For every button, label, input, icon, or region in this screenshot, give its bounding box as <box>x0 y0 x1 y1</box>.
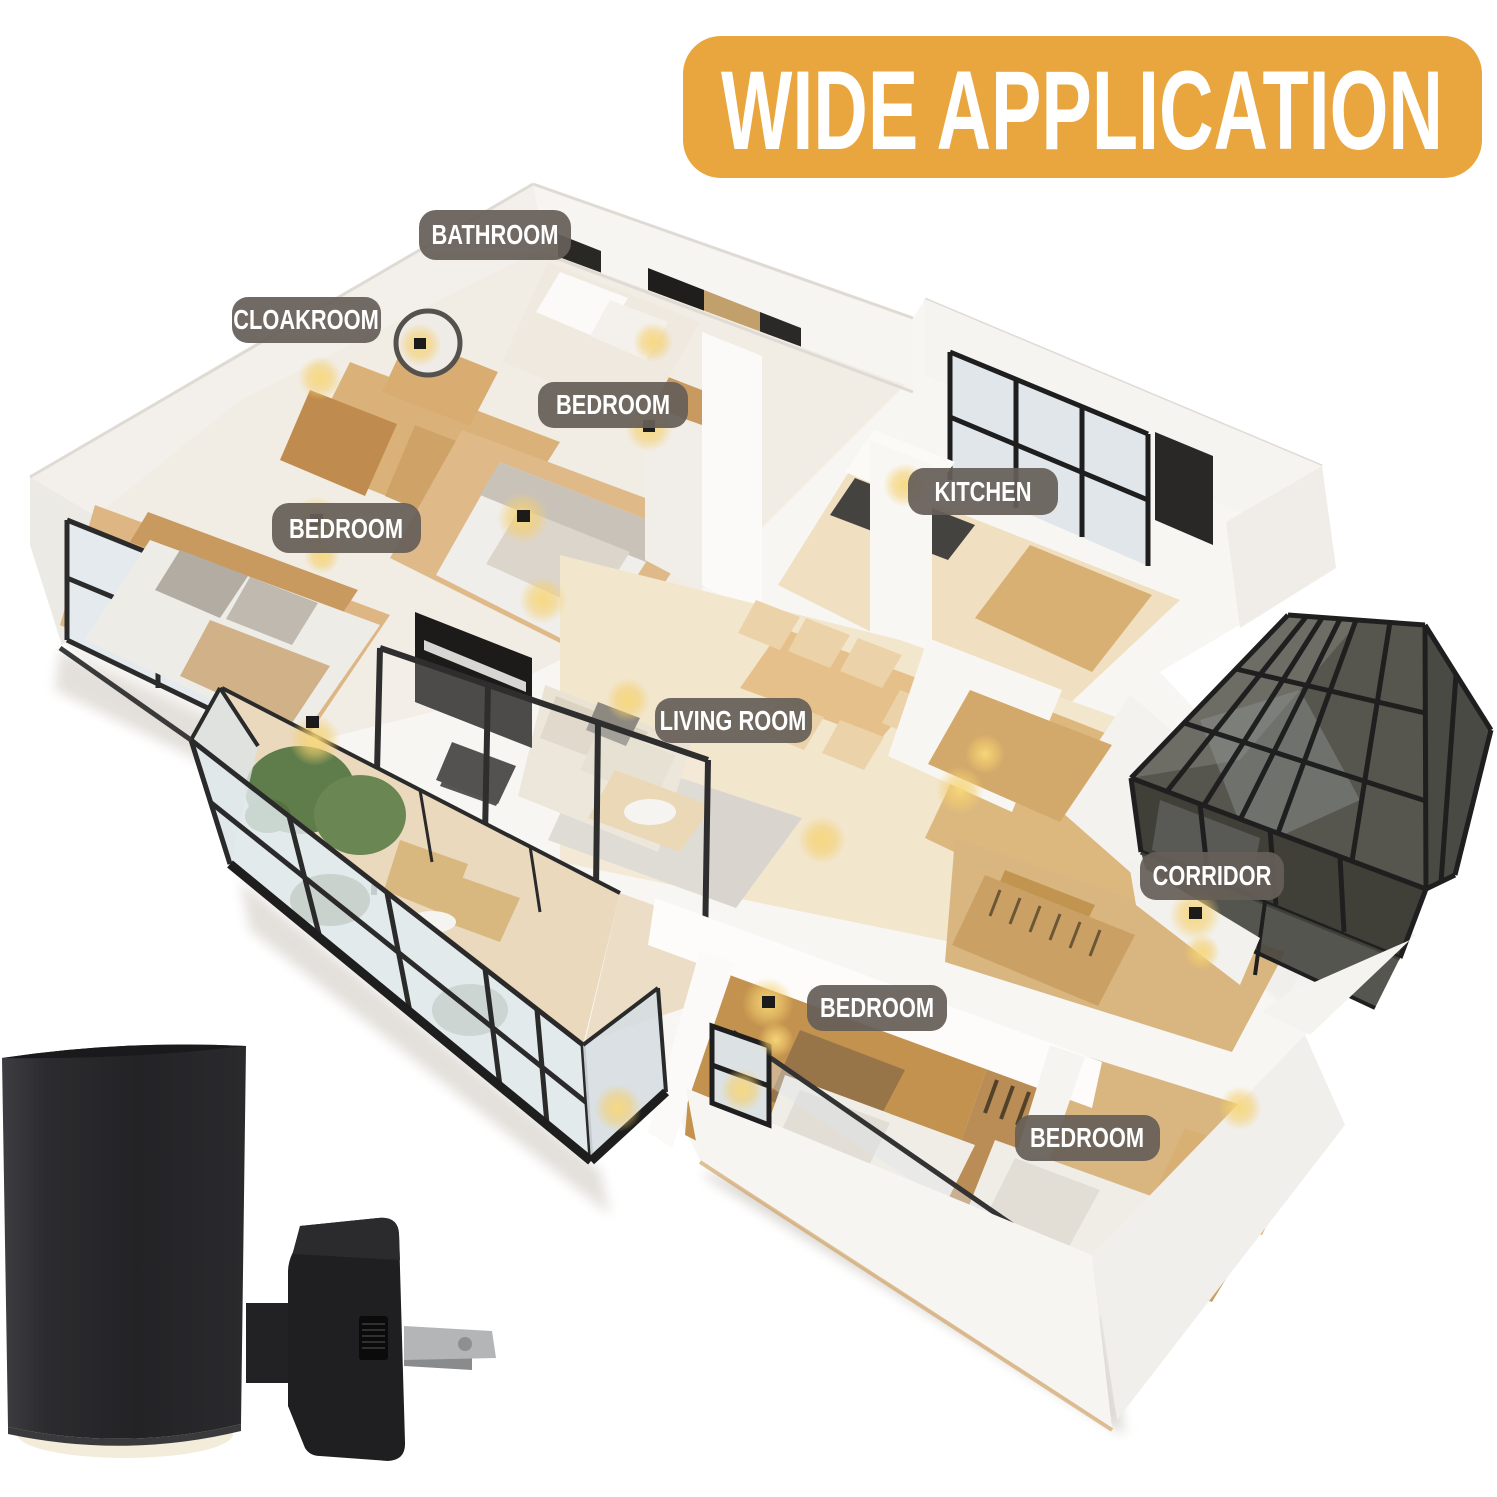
svg-text:BATHROOM: BATHROOM <box>432 219 559 250</box>
svg-text:CORRIDOR: CORRIDOR <box>1153 860 1272 891</box>
svg-text:LIVING ROOM: LIVING ROOM <box>660 705 807 736</box>
svg-text:BEDROOM: BEDROOM <box>289 513 403 544</box>
svg-text:KITCHEN: KITCHEN <box>934 476 1031 507</box>
svg-text:BEDROOM: BEDROOM <box>820 992 934 1023</box>
svg-text:BEDROOM: BEDROOM <box>556 389 670 420</box>
svg-text:BEDROOM: BEDROOM <box>1030 1122 1144 1153</box>
svg-text:CLOAKROOM: CLOAKROOM <box>233 304 378 335</box>
svg-text:WIDE APPLICATION: WIDE APPLICATION <box>721 48 1443 173</box>
